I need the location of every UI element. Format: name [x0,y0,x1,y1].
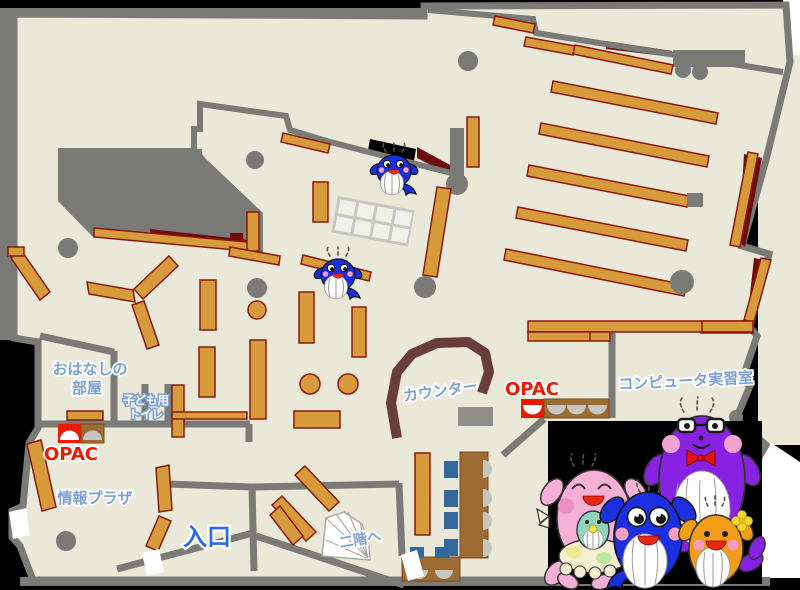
label-kids-toilet-line1: 子ども用 [123,393,169,407]
opac-terminal-left [58,424,104,443]
library-floor-map: おはなしの 部屋 子ども用 トイレ OPAC 情報プラザ 入口 二階へ カウンタ… [0,0,800,590]
label-opac-right: OPAC [505,379,559,400]
pc-desk-column [444,452,492,558]
wall-stub [450,128,464,180]
counter-desk [458,407,493,426]
top-outer-wall [0,8,426,17]
label-storytelling-room-line2: 部屋 [72,379,102,397]
left-outer-wall [0,8,15,340]
label-kids-toilet-line2: トイレ [129,407,164,421]
column [692,64,708,80]
opac-terminal-right [521,399,609,418]
label-info-plaza: 情報プラザ [57,489,132,507]
label-entrance: 入口 [183,523,231,551]
column [675,62,691,78]
floor-map-canvas: おはなしの 部屋 子ども用 トイレ OPAC 情報プラザ 入口 二階へ カウンタ… [0,0,800,590]
label-opac-left: OPAC [44,444,98,465]
label-storytelling-room-line1: おはなしの [52,360,127,378]
